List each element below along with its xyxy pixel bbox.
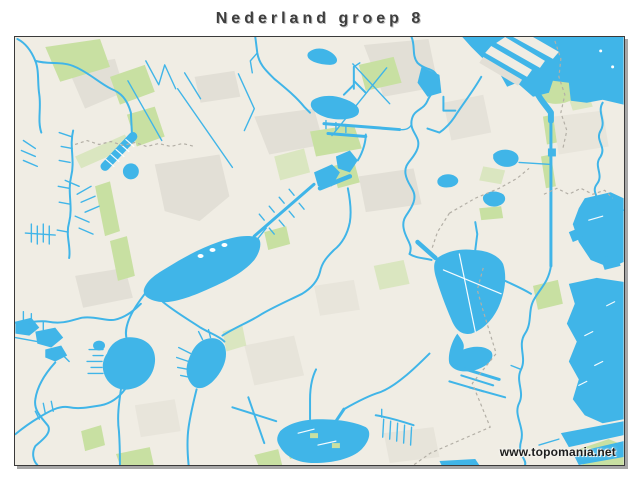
page: { "header": { "title": "Nederland groep … <box>0 0 640 480</box>
map-image <box>15 37 624 465</box>
right-marsh <box>567 278 624 423</box>
map-title: Nederland groep 8 <box>0 10 640 28</box>
meander-river <box>517 298 535 465</box>
watermark: www.topomania.net <box>500 445 616 459</box>
large-elongated-lake <box>144 236 261 302</box>
lakes <box>15 48 623 465</box>
round-lake <box>103 337 155 389</box>
map-frame: www.topomania.net <box>14 36 625 466</box>
broads-lake <box>434 249 505 334</box>
bottom-marsh <box>277 419 369 463</box>
east-lake <box>187 338 226 388</box>
